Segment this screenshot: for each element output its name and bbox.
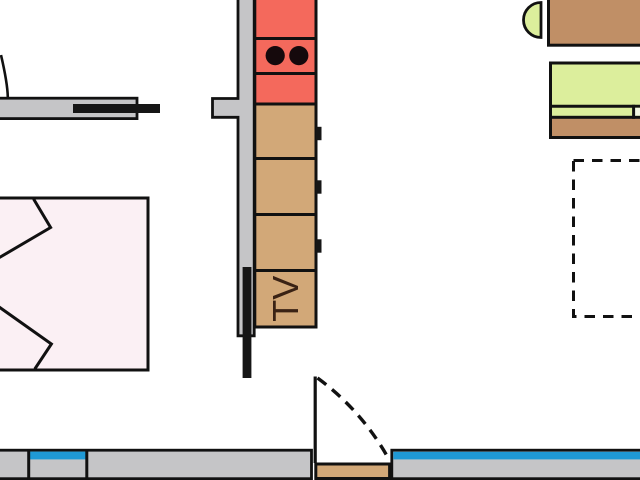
- svg-text:TV: TV: [265, 276, 306, 322]
